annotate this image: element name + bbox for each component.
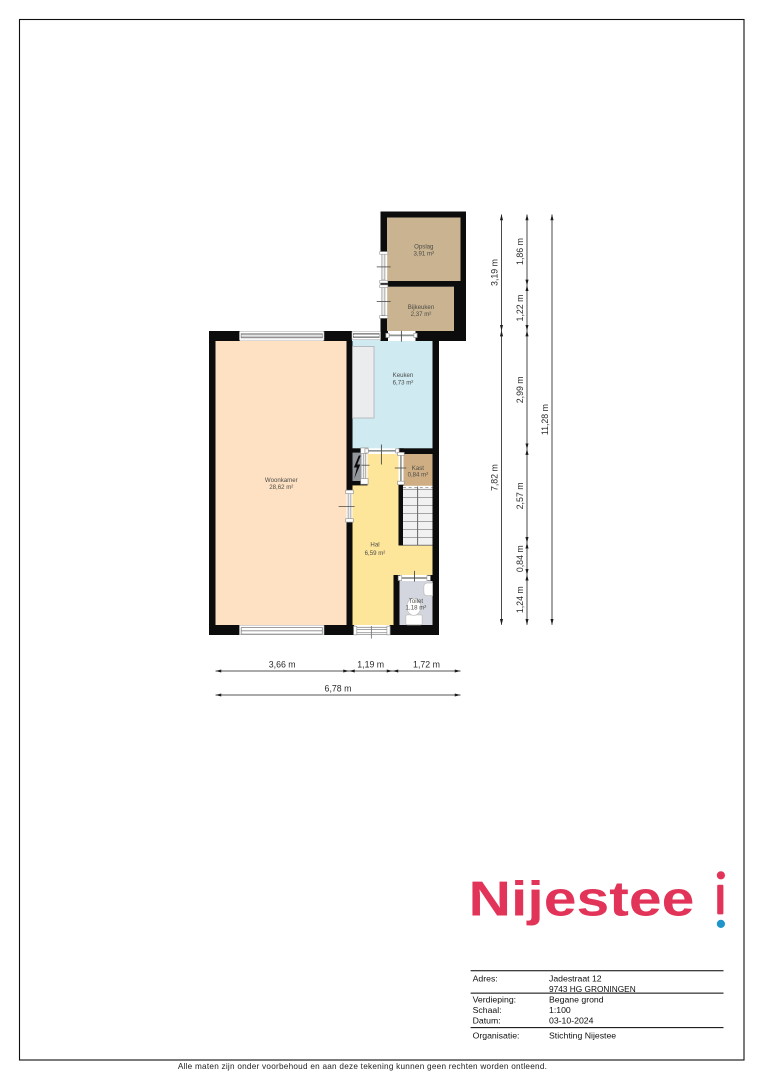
svg-text:1,86 m: 1,86 m bbox=[515, 238, 525, 265]
svg-text:3,19 m: 3,19 m bbox=[490, 259, 500, 286]
svg-text:3,91 m²: 3,91 m² bbox=[413, 251, 434, 258]
svg-text:Organisatie:: Organisatie: bbox=[473, 1031, 520, 1041]
svg-text:2,57 m: 2,57 m bbox=[515, 482, 525, 509]
svg-text:0,84 m²: 0,84 m² bbox=[408, 471, 429, 478]
svg-text:1:100: 1:100 bbox=[549, 1005, 571, 1015]
svg-text:1,72 m: 1,72 m bbox=[413, 659, 440, 669]
svg-text:Jadestraat 12: Jadestraat 12 bbox=[549, 974, 602, 984]
svg-text:6,59 m²: 6,59 m² bbox=[365, 550, 386, 557]
svg-text:Opslag: Opslag bbox=[414, 243, 433, 250]
svg-text:Keuken: Keuken bbox=[393, 372, 414, 379]
svg-text:Bijkeuken: Bijkeuken bbox=[408, 304, 434, 311]
svg-text:Begane grond: Begane grond bbox=[549, 995, 604, 1005]
svg-text:2,37 m²: 2,37 m² bbox=[411, 311, 432, 318]
svg-text:11,28 m: 11,28 m bbox=[540, 404, 550, 435]
svg-text:28,62 m²: 28,62 m² bbox=[269, 484, 293, 491]
svg-text:1,22 m: 1,22 m bbox=[515, 295, 525, 322]
svg-text:Alle maten zijn onder voorbeho: Alle maten zijn onder voorbehoud en aan … bbox=[178, 1062, 547, 1071]
svg-text:03-10-2024: 03-10-2024 bbox=[549, 1016, 594, 1026]
svg-text:1,18 m²: 1,18 m² bbox=[406, 604, 427, 611]
svg-text:3,66 m: 3,66 m bbox=[269, 659, 296, 669]
svg-text:6,78 m: 6,78 m bbox=[325, 683, 352, 693]
svg-text:6,73 m²: 6,73 m² bbox=[393, 379, 414, 386]
svg-text:Adres:: Adres: bbox=[473, 974, 498, 984]
svg-text:Verdieping:: Verdieping: bbox=[473, 995, 516, 1005]
svg-text:Nijestee: Nijestee bbox=[469, 871, 695, 926]
svg-text:1,24 m: 1,24 m bbox=[515, 586, 525, 613]
svg-text:Stichting Nijestee: Stichting Nijestee bbox=[549, 1031, 616, 1041]
svg-text:Datum:: Datum: bbox=[473, 1016, 501, 1026]
svg-text:7,82 m: 7,82 m bbox=[490, 464, 500, 491]
svg-text:2,99 m: 2,99 m bbox=[515, 376, 525, 403]
svg-text:1,19 m: 1,19 m bbox=[357, 659, 384, 669]
svg-text:Woonkamer: Woonkamer bbox=[265, 477, 298, 484]
svg-text:Hal: Hal bbox=[370, 542, 379, 549]
svg-text:9743 HG GRONINGEN: 9743 HG GRONINGEN bbox=[549, 984, 636, 994]
svg-text:0,84 m: 0,84 m bbox=[515, 545, 525, 572]
svg-text:Schaal:: Schaal: bbox=[473, 1005, 502, 1015]
